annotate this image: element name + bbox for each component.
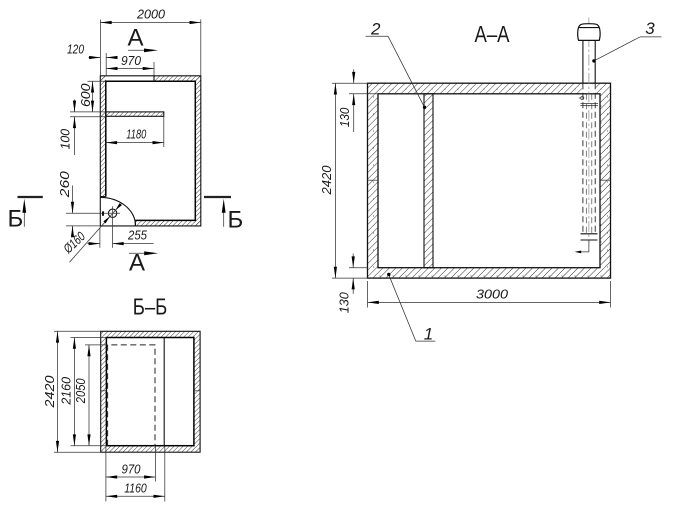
svg-text:А: А [129,250,145,277]
svg-text:2420: 2420 [42,375,57,409]
svg-text:3: 3 [645,19,655,38]
svg-text:100: 100 [58,128,73,149]
svg-text:1160: 1160 [124,481,147,496]
svg-text:255: 255 [127,227,148,242]
svg-text:2420: 2420 [319,165,334,196]
svg-text:260: 260 [57,170,72,198]
svg-text:600: 600 [78,83,93,107]
svg-text:Б: Б [228,206,244,233]
svg-text:1180: 1180 [126,126,147,141]
svg-text:А: А [127,25,143,52]
svg-text:970: 970 [122,461,142,476]
svg-text:2: 2 [370,19,381,38]
svg-text:130: 130 [337,107,352,127]
svg-text:3000: 3000 [476,286,509,301]
svg-text:2050: 2050 [73,378,88,404]
svg-text:Б: Б [8,205,24,232]
svg-text:А–А: А–А [475,21,511,47]
svg-text:2000: 2000 [136,7,166,22]
svg-text:130: 130 [336,292,351,314]
svg-text:120: 120 [67,42,85,57]
svg-text:Б–Б: Б–Б [133,294,168,320]
svg-text:2160: 2160 [58,376,73,405]
svg-text:970: 970 [121,53,142,68]
